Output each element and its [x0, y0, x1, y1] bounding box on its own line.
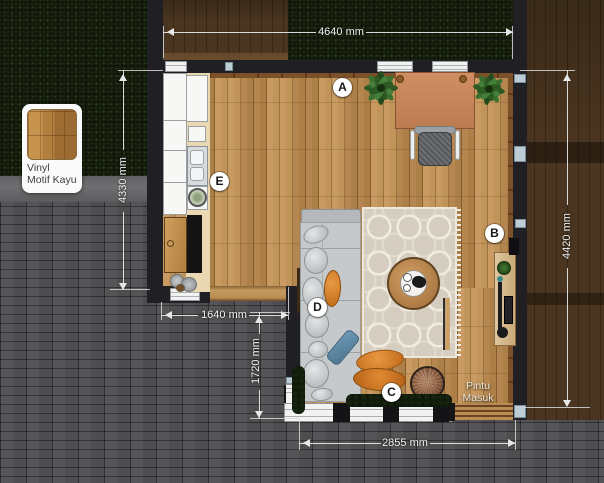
dim-ext-line: [110, 289, 150, 290]
entrance-label-line2: Masuk: [448, 393, 508, 405]
dim-arrow-icon: [563, 400, 571, 411]
legend-line1: Vinyl: [27, 163, 81, 175]
kitchen-cabinet-divider-1: [164, 120, 186, 121]
console-bowl: [497, 327, 508, 338]
dim-label-lower-left: 1720 mm: [250, 331, 262, 391]
dim-line: [299, 443, 381, 444]
dim-ext-line: [523, 407, 590, 408]
dim-line: [123, 212, 124, 290]
dim-arrow-icon: [508, 439, 519, 447]
deck-right-band-2: [524, 293, 604, 305]
window-post-1: [333, 403, 350, 422]
wood-cabinet-knob: [167, 240, 174, 247]
rug-fringe: [457, 209, 461, 356]
dim-line: [163, 32, 316, 33]
vinyl-wood-swatch-icon: [27, 109, 77, 160]
kitchen-cabinet-column: [163, 73, 187, 215]
dim-arrow-icon: [161, 311, 172, 319]
legend-text: Vinyl Motif Kayu: [27, 163, 81, 187]
floorplan-canvas: 4640 mm 4330 mm 1640 mm 1720 mm 2855 mm …: [0, 0, 604, 483]
console-box: [504, 296, 513, 324]
dim-arrow-icon: [255, 312, 263, 323]
marker-e[interactable]: E: [210, 172, 229, 191]
dim-arrow-icon: [255, 411, 263, 422]
console-bar: [498, 282, 502, 332]
dim-label-kitchen-width: 1640 mm: [194, 309, 254, 321]
window-sill-right-1: [514, 74, 526, 83]
window-sill-right-3: [515, 219, 526, 228]
kitchen-appliance-small: [188, 126, 206, 142]
kitchen-plant-deco-3: [176, 284, 185, 292]
desk-chair-arm-left: [410, 130, 415, 160]
plant-garland-corner: [292, 366, 305, 414]
dim-line: [366, 32, 513, 33]
wall-left-kitchen: [147, 60, 163, 303]
entrance-label: Pintu Masuk: [448, 381, 508, 405]
dim-line: [123, 70, 124, 150]
marker-a[interactable]: A: [333, 78, 352, 97]
dim-label-left: 4330 mm: [117, 150, 129, 210]
wall-left-upper-ext: [147, 0, 163, 62]
tray-cup-1: [403, 273, 412, 282]
sink-basin-2: [190, 167, 204, 181]
wall-shelf-right: [443, 298, 450, 350]
window-top-2: [432, 61, 468, 72]
dim-arrow-icon: [119, 283, 127, 294]
dim-arrow-icon: [119, 70, 127, 81]
dim-line: [430, 443, 515, 444]
marker-b[interactable]: B: [485, 224, 504, 243]
fridge: [186, 75, 208, 122]
deck-right-band-1: [524, 142, 604, 163]
console-plant: [497, 261, 511, 275]
desk-grommet-right: [459, 75, 467, 83]
tray-cup-2: [403, 284, 411, 292]
kitchen-cabinet-divider-2: [164, 150, 186, 151]
plant-icon: [468, 70, 510, 108]
dim-arrow-icon: [506, 28, 517, 36]
window-sill-right-2: [514, 146, 526, 162]
dim-label-bottom: 2855 mm: [375, 437, 435, 449]
marker-d[interactable]: D: [308, 298, 327, 317]
window-top-kitchen: [165, 61, 187, 72]
legend-card: Vinyl Motif Kayu: [22, 104, 82, 193]
window-sill-top-1: [225, 62, 233, 71]
marker-c[interactable]: C: [382, 383, 401, 402]
cooktop-burner: [188, 188, 207, 207]
entrance-threshold: [455, 403, 513, 420]
plant-icon: [359, 68, 403, 108]
legend-line2: Motif Kayu: [27, 175, 81, 187]
console-top-item: [509, 238, 519, 255]
dim-arrow-icon: [299, 439, 310, 447]
dim-line: [567, 268, 568, 406]
kitchen-cabinet-divider-3: [164, 182, 186, 183]
dim-line: [567, 70, 568, 205]
dim-arrow-icon: [563, 70, 571, 81]
dim-label-right: 4420 mm: [561, 206, 573, 266]
dim-label-top: 4640 mm: [311, 26, 371, 38]
dim-arrow-icon: [163, 28, 174, 36]
kitchen-counter-gap: [187, 215, 202, 273]
desk-chair-arm-right: [455, 130, 460, 160]
desk-chair-seat: [418, 132, 452, 166]
sink-basin-1: [190, 150, 204, 165]
